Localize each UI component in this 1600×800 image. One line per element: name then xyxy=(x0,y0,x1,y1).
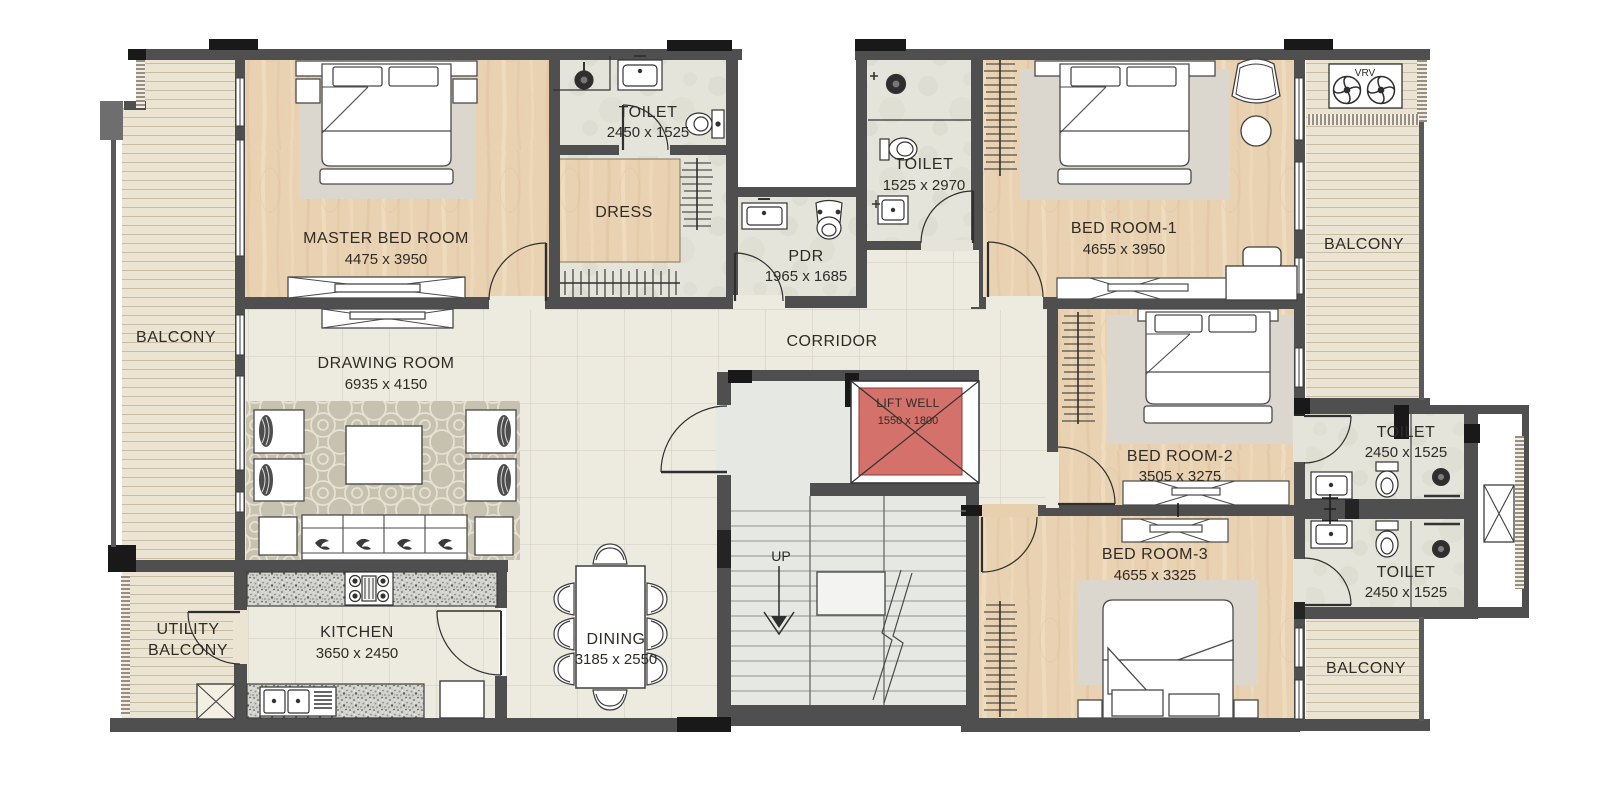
svg-text:3185 x 2550: 3185 x 2550 xyxy=(575,651,658,668)
svg-text:BED ROOM-1: BED ROOM-1 xyxy=(1071,220,1177,237)
svg-text:4475 x 3950: 4475 x 3950 xyxy=(345,251,428,268)
svg-text:TOILET: TOILET xyxy=(619,104,678,121)
svg-text:1525 x 2970: 1525 x 2970 xyxy=(883,177,966,194)
svg-text:DINING: DINING xyxy=(587,631,646,648)
svg-text:TOILET: TOILET xyxy=(1377,424,1436,441)
svg-text:3505 x 3275: 3505 x 3275 xyxy=(1139,468,1222,485)
svg-text:4655 x 3950: 4655 x 3950 xyxy=(1083,241,1166,258)
svg-text:2450 x 1525: 2450 x 1525 xyxy=(1365,444,1448,461)
svg-text:DRAWING ROOM: DRAWING ROOM xyxy=(318,355,455,372)
svg-text:BED ROOM-2: BED ROOM-2 xyxy=(1127,448,1233,465)
svg-text:BALCONY: BALCONY xyxy=(136,329,216,346)
svg-text:DRESS: DRESS xyxy=(595,204,653,221)
svg-text:BALCONY: BALCONY xyxy=(148,642,228,659)
svg-text:1550 x 1800: 1550 x 1800 xyxy=(878,415,939,427)
svg-text:VRV: VRV xyxy=(1355,68,1376,79)
svg-text:MASTER BED ROOM: MASTER BED ROOM xyxy=(303,230,469,247)
svg-text:UP: UP xyxy=(771,548,790,564)
svg-text:BALCONY: BALCONY xyxy=(1326,660,1406,677)
svg-text:BED ROOM-3: BED ROOM-3 xyxy=(1102,546,1208,563)
svg-text:PDR: PDR xyxy=(788,248,823,265)
svg-text:6935 x 4150: 6935 x 4150 xyxy=(345,376,428,393)
svg-text:CORRIDOR: CORRIDOR xyxy=(786,333,877,350)
svg-text:BALCONY: BALCONY xyxy=(1324,236,1404,253)
svg-text:2450 x 1525: 2450 x 1525 xyxy=(1365,584,1448,601)
svg-text:UTILITY: UTILITY xyxy=(156,621,219,638)
svg-text:4655 x 3325: 4655 x 3325 xyxy=(1114,567,1197,584)
svg-text:2450 x 1525: 2450 x 1525 xyxy=(607,124,690,141)
svg-text:TOILET: TOILET xyxy=(1377,564,1436,581)
svg-text:TOILET: TOILET xyxy=(895,156,954,173)
svg-text:KITCHEN: KITCHEN xyxy=(320,624,394,641)
svg-text:LIFT WELL: LIFT WELL xyxy=(876,396,939,410)
svg-text:1965 x 1685: 1965 x 1685 xyxy=(765,268,848,285)
svg-text:3650 x 2450: 3650 x 2450 xyxy=(316,645,399,662)
